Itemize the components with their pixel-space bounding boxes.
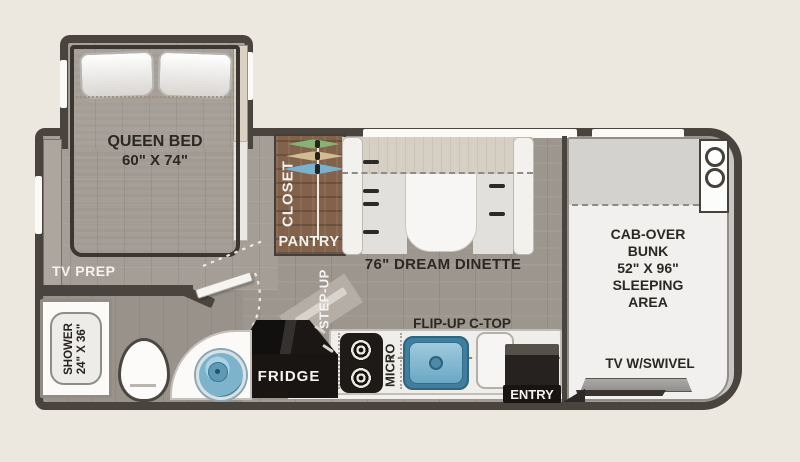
hanger-hook [315,164,320,174]
blanket-edge [76,96,234,98]
seat-tuft [363,230,379,234]
flip-up-ctop-label: FLIP-UP C-TOP [396,316,528,331]
seat-tuft [489,212,505,216]
bunk-line: CAB-OVER [611,226,686,243]
pillow-right [157,51,233,100]
bathroom-wall [43,285,193,296]
bathroom-sink-drain-icon [215,369,220,374]
tv-mount-bar [576,390,666,396]
cab-dash-area [569,139,699,205]
seat-tuft [489,184,505,188]
seat-tuft [363,202,379,206]
bunk-line: BUNK [628,243,668,260]
counter-divider [400,333,402,389]
bunk-line: 52" X 96" [617,260,679,277]
dinette-seatback-band [342,137,533,174]
microwave-label: MICRO [381,334,399,396]
shower-line: SHOWER [63,323,76,375]
fridge-label: FRIDGE [248,368,330,385]
cab-over-bunk-label: CAB-OVER BUNK 52" X 96" SLEEPING AREA [569,226,727,311]
entry-label: ENTRY [503,385,561,403]
shower-size: 24" X 36" [76,324,89,375]
burner-icon [350,367,372,389]
tv-icon [580,378,692,392]
tv-prep-label: TV PREP [52,263,162,279]
dinette-armrest-right [513,137,534,255]
floorplan-canvas: { "colors": { "background": "#ece8e0", "… [0,0,800,462]
hanger-hook [315,140,320,148]
bunk-dashed-line [572,204,699,206]
dinette-dashed-line [342,172,533,174]
bunk-line: SLEEPING [613,277,684,294]
seat-tuft [363,160,379,164]
shower-label: SHOWER 24" X 36" [50,312,102,386]
closet-label: CLOSET [277,146,299,242]
queen-bed-size: 60" X 74" [75,152,235,169]
cupholder-icon [705,147,725,167]
hanger-hook [315,152,320,160]
window-slideout-left [60,60,67,108]
cupholder-icon [705,168,725,188]
dinette-label: 76" DREAM DINETTE [348,256,538,273]
toilet-seat-line [130,384,156,387]
toilet [118,338,170,402]
tv-swivel-label: TV W/SWIVEL [572,356,728,371]
seat-tuft [363,189,379,193]
burner-icon [350,339,372,361]
window-left-wall [35,176,42,234]
dinette-armrest-left [342,137,363,255]
queen-bed-label: QUEEN BED [75,133,235,151]
sink-drain-icon [429,356,443,370]
pantry-label: PANTRY [274,234,344,250]
bunk-line: AREA [628,294,668,311]
pillow-left [79,51,155,100]
entry-step [505,344,559,390]
